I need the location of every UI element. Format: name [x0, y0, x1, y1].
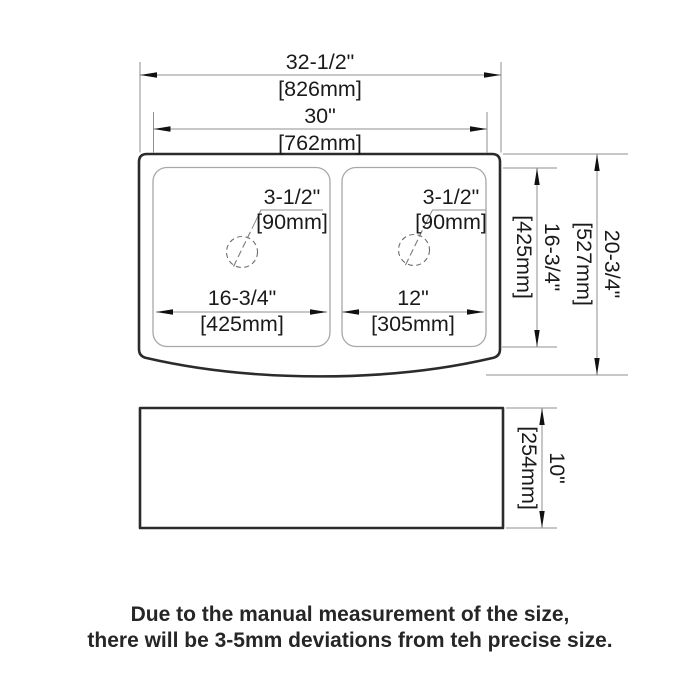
- dim-left-bowl-inches: 16-3/4": [208, 286, 277, 310]
- arrow-left: [140, 72, 157, 77]
- product-dimension-image: 32-1/2" [826mm] 30" [762mm] 3-1/2" [90mm…: [0, 0, 700, 700]
- dim-bowl-depth: 16-3/4" [425mm]: [502, 168, 564, 347]
- dim-side-height-inches: 10": [545, 452, 569, 484]
- dim-inner-width-mm: [762mm]: [278, 131, 362, 155]
- dim-bowl-depth-inches: 16-3/4": [540, 223, 564, 292]
- dim-overall-depth-inches: 20-3/4": [600, 230, 624, 299]
- dim-inner-width-inches: 30": [304, 104, 336, 128]
- dim-overall-width-inches: 32-1/2": [286, 50, 355, 74]
- arrow-bottom: [594, 358, 599, 375]
- dim-overall-width-mm: [826mm]: [278, 77, 362, 101]
- sink-side-view: [140, 408, 503, 528]
- arrow-bottom: [539, 511, 544, 528]
- measurement-note: Due to the manual measurement of the siz…: [87, 603, 612, 652]
- arrow-bottom: [534, 330, 539, 347]
- dim-right-bowl-inches: 12": [397, 286, 429, 310]
- note-line-1: Due to the manual measurement of the siz…: [131, 603, 570, 626]
- dim-left-drain-inches: 3-1/2": [264, 185, 321, 209]
- dim-right-drain-inches: 3-1/2": [423, 185, 480, 209]
- arrow-right: [484, 72, 501, 77]
- arrow-top: [534, 168, 539, 185]
- dim-right-bowl-mm: [305mm]: [371, 312, 455, 336]
- sink-dimension-drawing: 32-1/2" [826mm] 30" [762mm] 3-1/2" [90mm…: [0, 0, 700, 700]
- dim-right-drain-mm: [90mm]: [415, 210, 487, 234]
- sink-side-view-outline: [140, 408, 503, 528]
- dim-bowl-depth-mm: [425mm]: [512, 215, 536, 299]
- dim-left-bowl-mm: [425mm]: [200, 312, 284, 336]
- arrow-top: [594, 154, 599, 171]
- arrow-top: [539, 408, 544, 425]
- dim-inner-width: 30" [762mm]: [154, 104, 488, 155]
- dim-left-drain-mm: [90mm]: [256, 210, 328, 234]
- dim-side-height-mm: [254mm]: [517, 426, 541, 510]
- dim-side-height: 10" [254mm]: [506, 408, 569, 528]
- dim-overall-depth-mm: [527mm]: [572, 222, 596, 306]
- arrow-left: [154, 126, 171, 131]
- arrow-right: [470, 126, 487, 131]
- note-line-2: there will be 3-5mm deviations from teh …: [87, 629, 612, 652]
